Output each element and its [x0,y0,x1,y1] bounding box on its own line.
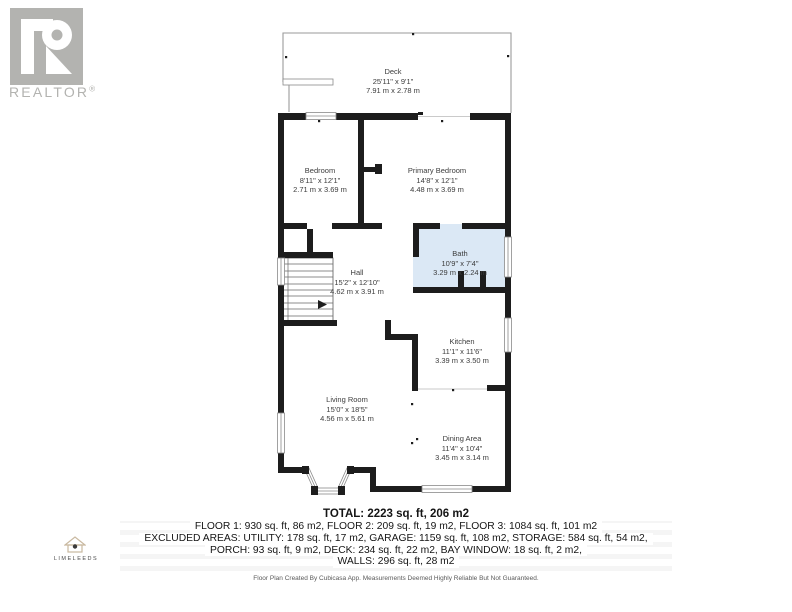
room-name: Living Room [320,395,374,405]
room-dims-imperial: 25'11" x 9'1" [366,77,420,87]
room-name: Hall [330,268,384,278]
room-dims-imperial: 14'8" x 12'1" [408,176,466,186]
room-label-bath: Bath 10'9" x 7'4" 3.29 m x 2.24 m [433,249,487,278]
summary-excluded-2: PORCH: 93 sq. ft, 9 m2, DECK: 234 sq. ft… [205,545,587,557]
summary-floors: FLOOR 1: 930 sq. ft, 86 m2, FLOOR 2: 209… [190,521,602,533]
room-dims-imperial: 10'9" x 7'4" [433,259,487,269]
summary-total: TOTAL: 2223 sq. ft, 206 m2 [318,507,474,521]
room-label-hall: Hall 15'2" x 12'10" 4.62 m x 3.91 m [330,268,384,297]
room-dims-imperial: 11'1" x 11'6" [435,347,489,357]
floor-plan-page: REALTOR® [0,0,792,612]
room-name: Primary Bedroom [408,166,466,176]
room-label-deck: Deck 25'11" x 9'1" 7.91 m x 2.78 m [366,67,420,96]
staircase [283,258,333,322]
summary-excluded-1: EXCLUDED AREAS: UTILITY: 178 sq. ft, 17 … [139,533,652,545]
room-name: Kitchen [435,337,489,347]
room-name: Bath [433,249,487,259]
room-label-bedroom: Bedroom 8'11" x 12'1" 2.71 m x 3.69 m [293,166,347,195]
room-dims-metric: 7.91 m x 2.78 m [366,86,420,96]
room-dims-metric: 2.71 m x 3.69 m [293,185,347,195]
disclaimer-text: Floor Plan Created By Cubicasa App. Meas… [0,575,792,582]
room-label-dining-area: Dining Area 11'4" x 10'4" 3.45 m x 3.14 … [435,434,489,463]
summary-walls: WALLS: 296 sq. ft, 28 m2 [333,556,460,568]
room-dims-metric: 4.62 m x 3.91 m [330,287,384,297]
room-dims-metric: 3.45 m x 3.14 m [435,453,489,463]
room-name: Dining Area [435,434,489,444]
room-dims-metric: 4.48 m x 3.69 m [408,185,466,195]
room-name: Bedroom [293,166,347,176]
room-label-primary-bedroom: Primary Bedroom 14'8" x 12'1" 4.48 m x 3… [408,166,466,195]
limeleeds-wordmark: LIMELEEDS [54,556,98,562]
room-dims-metric: 4.56 m x 5.61 m [320,414,374,424]
bay-window [302,466,354,495]
room-dims-imperial: 8'11" x 12'1" [293,176,347,186]
area-summary: TOTAL: 2223 sq. ft, 206 m2 FLOOR 1: 930 … [0,507,792,568]
room-dims-imperial: 15'2" x 12'10" [330,278,384,288]
limeleeds-house-icon [64,536,86,554]
room-dims-imperial: 15'0" x 18'5" [320,405,374,415]
room-label-living-room: Living Room 15'0" x 18'5" 4.56 m x 5.61 … [320,395,374,424]
room-label-kitchen: Kitchen 11'1" x 11'6" 3.39 m x 3.50 m [435,337,489,366]
room-dims-imperial: 11'4" x 10'4" [435,444,489,454]
room-name: Deck [366,67,420,77]
room-dims-metric: 3.39 m x 3.50 m [435,356,489,366]
room-dims-metric: 3.29 m x 2.24 m [433,268,487,278]
